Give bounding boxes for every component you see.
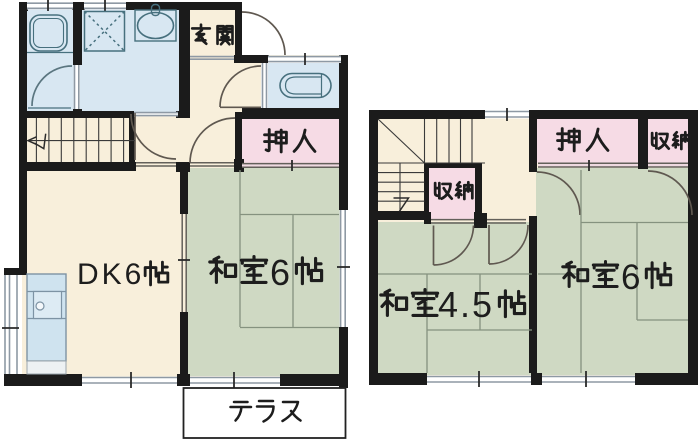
svg-text:6: 6	[621, 258, 640, 297]
svg-text:DK6: DK6	[77, 258, 144, 291]
svg-text:6: 6	[270, 252, 290, 293]
svg-text:4.5: 4.5	[438, 284, 494, 325]
